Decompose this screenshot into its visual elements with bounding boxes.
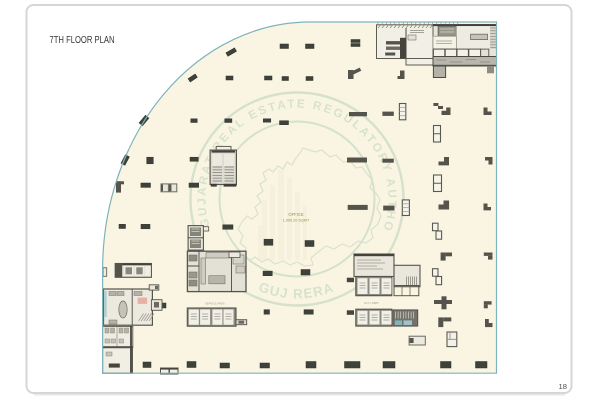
svg-text:OFFICE: OFFICE [288, 212, 304, 217]
svg-text:7TH FLOOR PLAN: 7TH FLOOR PLAN [50, 35, 115, 46]
svg-text:1,995.20 SQMT: 1,995.20 SQMT [283, 219, 310, 223]
svg-text:18: 18 [559, 382, 567, 391]
svg-text:LIFT LOBBY: LIFT LOBBY [364, 301, 379, 305]
svg-text:SERVICE AREA: SERVICE AREA [205, 302, 225, 306]
